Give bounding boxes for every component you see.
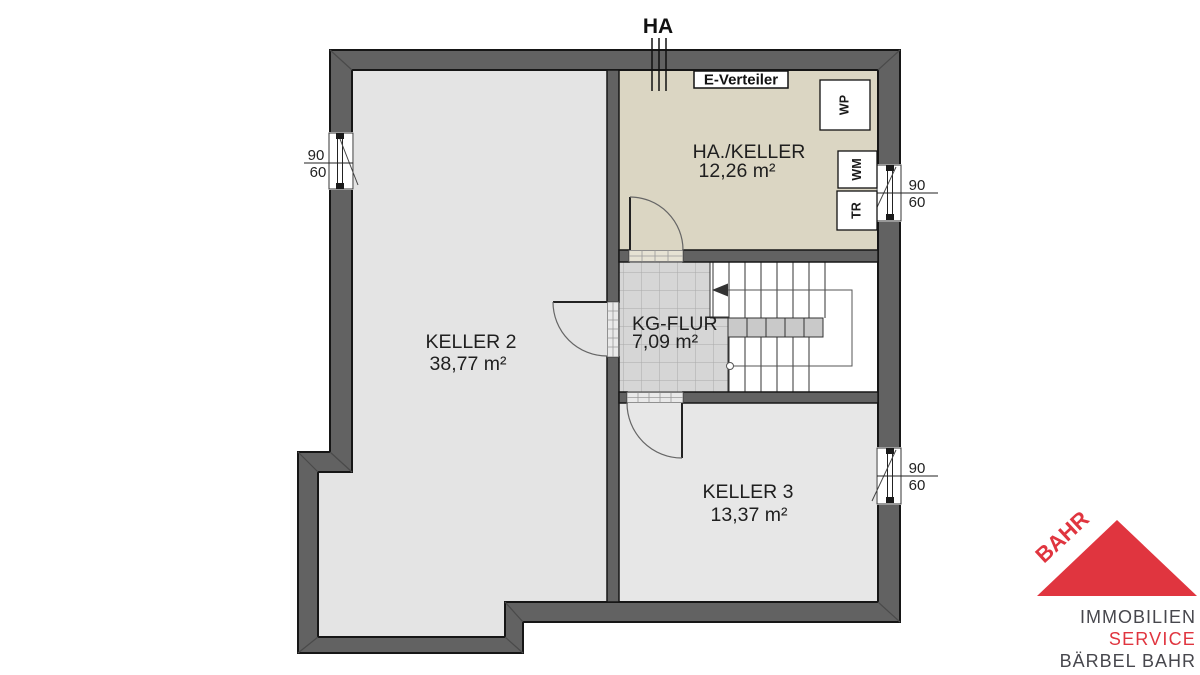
room-keller2-area: 38,77 m² bbox=[430, 353, 507, 375]
e-verteiler-label: E-Verteiler bbox=[704, 72, 778, 89]
window-cap-top bbox=[886, 165, 894, 171]
floor-plan-page: 90 60 90 60 90 60 HA E-Verteiler WP bbox=[0, 0, 1200, 675]
wall-ha-keller-left bbox=[619, 250, 629, 262]
e-verteiler-box: E-Verteiler bbox=[694, 71, 788, 89]
window-right-bottom: 90 60 bbox=[872, 447, 938, 505]
window-cap-bottom bbox=[886, 214, 894, 220]
dimension-width: 90 bbox=[909, 177, 926, 194]
appliance-wm-label: WM bbox=[850, 158, 864, 180]
window-glazing bbox=[338, 138, 343, 184]
stair-mid-flight bbox=[728, 318, 823, 337]
ha-label: HA bbox=[643, 15, 673, 38]
room-kg-flur-area: 7,09 m² bbox=[632, 331, 699, 353]
window-cap-top bbox=[336, 133, 344, 139]
wall-keller3-right bbox=[683, 392, 878, 403]
window-cap-bottom bbox=[886, 497, 894, 503]
dimension-height: 60 bbox=[909, 194, 926, 211]
room-keller3-area: 13,37 m² bbox=[711, 504, 788, 526]
dimension-height: 60 bbox=[909, 477, 926, 494]
window-cap-bottom bbox=[336, 183, 344, 189]
wall-keller3-left bbox=[619, 392, 627, 403]
room-keller3-name: KELLER 3 bbox=[702, 481, 793, 503]
logo-immobilien-text: IMMOBILIEN bbox=[1080, 607, 1196, 627]
dimension-height: 60 bbox=[310, 164, 327, 181]
window-right-top: 90 60 bbox=[872, 164, 938, 222]
logo-service-text: SERVICE bbox=[1109, 629, 1196, 649]
wall-ha-keller-right bbox=[683, 250, 878, 262]
appliance-wp-label: WP bbox=[837, 95, 851, 115]
logo-baerbel-bahr-text: BÄRBEL BAHR bbox=[1060, 651, 1196, 671]
room-ha-keller-area: 12,26 m² bbox=[699, 160, 776, 182]
appliance-tr-label: TR bbox=[849, 202, 863, 219]
dimension-width: 90 bbox=[909, 460, 926, 477]
floor-plan-drawing: 90 60 90 60 90 60 HA E-Verteiler WP bbox=[0, 0, 1200, 675]
wall-keller2-divider-upper bbox=[607, 70, 619, 302]
window-left: 90 60 bbox=[304, 132, 358, 190]
dimension-width: 90 bbox=[308, 147, 325, 164]
stair-walkline-start-circle bbox=[727, 363, 734, 370]
company-logo: BAHR IMMOBILIEN SERVICE BÄRBEL BAHR bbox=[1030, 506, 1197, 671]
room-keller2-name: KELLER 2 bbox=[425, 331, 516, 353]
wall-keller2-divider-lower bbox=[607, 357, 619, 602]
window-cap-top bbox=[886, 448, 894, 454]
